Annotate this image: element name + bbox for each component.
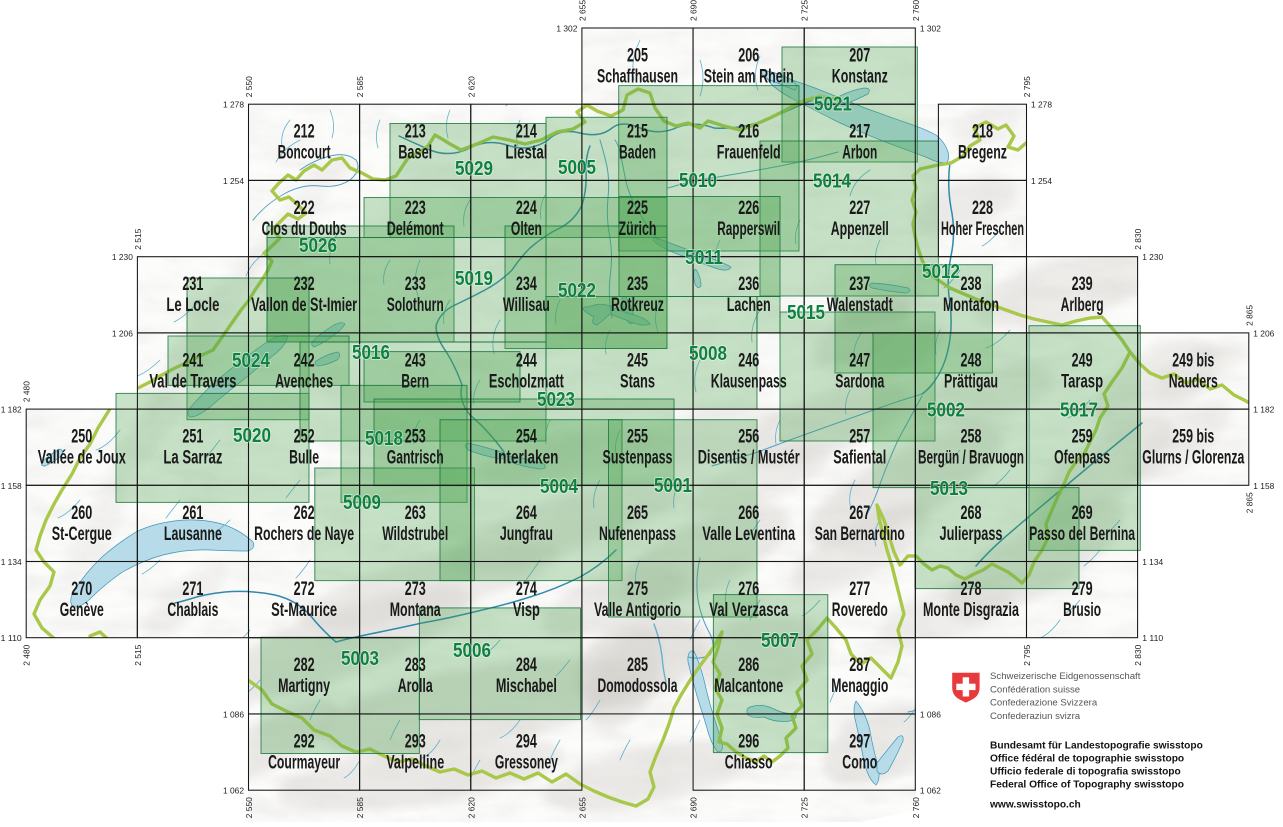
svg-text:226: 226	[738, 198, 759, 219]
svg-text:Klausenpass: Klausenpass	[711, 371, 787, 392]
svg-text:Confédération suisse: Confédération suisse	[990, 684, 1080, 695]
svg-text:5023: 5023	[537, 388, 575, 411]
svg-text:1 062: 1 062	[223, 786, 244, 796]
svg-text:206: 206	[738, 46, 759, 67]
svg-text:Liestal: Liestal	[505, 143, 547, 164]
svg-text:Valle Leventina: Valle Leventina	[702, 524, 795, 545]
svg-text:247: 247	[849, 350, 870, 371]
svg-text:2 655: 2 655	[577, 797, 587, 818]
svg-text:Schweizerische Eidgenossenscha: Schweizerische Eidgenossenschaft	[990, 671, 1141, 682]
svg-text:Wildstrubel: Wildstrubel	[382, 524, 448, 545]
svg-text:246: 246	[738, 350, 759, 371]
svg-text:1 062: 1 062	[920, 786, 941, 796]
svg-text:5018: 5018	[365, 427, 403, 450]
svg-text:253: 253	[405, 427, 426, 448]
svg-text:5009: 5009	[343, 491, 381, 514]
svg-text:1 110: 1 110	[1142, 633, 1163, 643]
svg-text:292: 292	[294, 732, 315, 753]
svg-text:Mischabel: Mischabel	[496, 676, 557, 697]
svg-text:2 655: 2 655	[577, 0, 587, 21]
svg-text:Office fédéral de topographie: Office fédéral de topographie swisstopo	[990, 754, 1184, 765]
svg-text:Visp: Visp	[513, 600, 540, 621]
svg-text:Konstanz: Konstanz	[832, 67, 888, 88]
svg-text:Nauders: Nauders	[1169, 371, 1218, 392]
svg-text:Roveredo: Roveredo	[832, 600, 888, 621]
svg-text:5001: 5001	[654, 474, 692, 497]
svg-text:5012: 5012	[922, 260, 960, 283]
svg-text:Bundesamt für Landestopografie: Bundesamt für Landestopografie swisstopo	[990, 741, 1203, 752]
svg-text:Rotkreuz: Rotkreuz	[611, 295, 664, 316]
svg-text:212: 212	[294, 122, 315, 143]
svg-text:276: 276	[738, 579, 759, 600]
svg-text:274: 274	[516, 579, 537, 600]
svg-text:265: 265	[627, 503, 648, 524]
svg-text:Brusio: Brusio	[1063, 600, 1101, 621]
svg-text:1 206: 1 206	[1253, 328, 1274, 338]
svg-text:Monte Disgrazia: Monte Disgrazia	[923, 600, 1019, 621]
svg-text:Disentis / Mustér: Disentis / Mustér	[698, 448, 800, 469]
svg-text:2 480: 2 480	[22, 644, 32, 665]
svg-text:1 278: 1 278	[223, 100, 244, 110]
svg-text:Stans: Stans	[620, 371, 655, 392]
svg-text:Valpelline: Valpelline	[386, 753, 444, 774]
svg-text:Martigny: Martigny	[278, 676, 330, 697]
svg-text:Sardona: Sardona	[835, 371, 884, 392]
svg-text:Lausanne: Lausanne	[164, 524, 222, 545]
svg-text:5024: 5024	[232, 349, 270, 372]
svg-text:296: 296	[738, 732, 759, 753]
svg-text:273: 273	[405, 579, 426, 600]
svg-text:2 830: 2 830	[1133, 644, 1143, 665]
svg-text:213: 213	[405, 122, 426, 143]
svg-text:285: 285	[627, 655, 648, 676]
svg-text:San Bernardino: San Bernardino	[815, 524, 905, 545]
svg-text:1 254: 1 254	[1031, 176, 1052, 186]
svg-text:Courmayeur: Courmayeur	[268, 753, 340, 774]
svg-text:1 206: 1 206	[112, 328, 133, 338]
svg-text:5008: 5008	[689, 342, 727, 365]
svg-text:249: 249	[1072, 350, 1093, 371]
svg-text:286: 286	[738, 655, 759, 676]
svg-text:297: 297	[849, 732, 870, 753]
svg-text:Boncourt: Boncourt	[278, 143, 331, 164]
svg-text:Valle Antigorio: Valle Antigorio	[594, 600, 681, 621]
svg-text:233: 233	[405, 274, 426, 295]
svg-text:Lachen: Lachen	[727, 295, 771, 316]
svg-text:2 865: 2 865	[1244, 492, 1254, 513]
svg-text:5003: 5003	[341, 647, 379, 670]
svg-text:Tarasp: Tarasp	[1061, 371, 1103, 392]
svg-text:5020: 5020	[233, 424, 271, 447]
svg-text:237: 237	[849, 274, 870, 295]
svg-text:5006: 5006	[453, 639, 491, 662]
svg-text:266: 266	[738, 503, 759, 524]
svg-text:Vallon de St-Imier: Vallon de St-Imier	[251, 295, 357, 316]
svg-text:Bregenz: Bregenz	[958, 143, 1007, 164]
svg-text:Julierpass: Julierpass	[940, 524, 1003, 545]
svg-text:222: 222	[294, 198, 315, 219]
svg-text:5004: 5004	[540, 475, 578, 498]
svg-text:1 302: 1 302	[556, 24, 577, 34]
svg-text:Montana: Montana	[390, 600, 441, 621]
svg-text:2 760: 2 760	[911, 0, 921, 21]
svg-text:Prättigau: Prättigau	[944, 371, 998, 392]
svg-text:251: 251	[182, 427, 203, 448]
svg-text:Rochers de Naye: Rochers de Naye	[254, 524, 354, 545]
svg-text:239: 239	[1072, 274, 1093, 295]
svg-text:Montafon: Montafon	[943, 295, 999, 316]
svg-text:2 795: 2 795	[1022, 644, 1032, 665]
svg-text:5011: 5011	[685, 246, 723, 269]
svg-text:2 795: 2 795	[1022, 76, 1032, 97]
svg-text:2 550: 2 550	[244, 76, 254, 97]
svg-text:2 725: 2 725	[800, 797, 810, 818]
svg-text:227: 227	[849, 198, 870, 219]
svg-text:1 134: 1 134	[1142, 557, 1163, 567]
svg-text:279: 279	[1072, 579, 1093, 600]
svg-text:271: 271	[182, 579, 203, 600]
svg-text:268: 268	[961, 503, 982, 524]
svg-text:236: 236	[738, 274, 759, 295]
svg-text:Stein am Rhein: Stein am Rhein	[704, 67, 794, 88]
svg-text:Zürich: Zürich	[619, 219, 657, 240]
svg-text:259: 259	[1072, 427, 1093, 448]
svg-text:2 690: 2 690	[689, 797, 699, 818]
svg-text:5005: 5005	[558, 156, 596, 179]
svg-text:232: 232	[294, 274, 315, 295]
svg-text:5014: 5014	[813, 170, 851, 193]
svg-text:294: 294	[516, 732, 537, 753]
svg-text:284: 284	[516, 655, 537, 676]
svg-text:Nufenenpass: Nufenenpass	[599, 524, 676, 545]
svg-text:216: 216	[738, 122, 759, 143]
svg-text:Val Verzasca: Val Verzasca	[709, 600, 788, 621]
svg-text:261: 261	[182, 503, 203, 524]
svg-text:269: 269	[1072, 503, 1093, 524]
svg-text:1 182: 1 182	[1253, 405, 1274, 415]
svg-text:Confederaziun svizra: Confederaziun svizra	[990, 711, 1081, 722]
svg-text:Glurns / Glorenza: Glurns / Glorenza	[1142, 448, 1244, 469]
svg-text:245: 245	[627, 350, 648, 371]
svg-text:La Sarraz: La Sarraz	[163, 448, 222, 469]
svg-text:223: 223	[405, 198, 426, 219]
svg-text:Basel: Basel	[398, 143, 432, 164]
svg-text:217: 217	[849, 122, 870, 143]
svg-text:Como: Como	[842, 753, 877, 774]
svg-text:Gressoney: Gressoney	[495, 753, 558, 774]
svg-text:1 182: 1 182	[1, 405, 22, 415]
svg-text:2 585: 2 585	[355, 797, 365, 818]
svg-text:214: 214	[516, 122, 537, 143]
svg-text:1 086: 1 086	[223, 710, 244, 720]
svg-text:293: 293	[405, 732, 426, 753]
svg-text:2 550: 2 550	[244, 797, 254, 818]
svg-text:238: 238	[961, 274, 982, 295]
svg-text:1 086: 1 086	[920, 710, 941, 720]
svg-text:278: 278	[961, 579, 982, 600]
svg-text:5026: 5026	[299, 234, 337, 257]
svg-text:Bergün / Bravuogn: Bergün / Bravuogn	[918, 448, 1024, 469]
svg-text:Arbon: Arbon	[842, 143, 877, 164]
svg-text:Val de Travers: Val de Travers	[149, 371, 236, 392]
svg-text:Hoher Freschen: Hoher Freschen	[941, 219, 1024, 240]
svg-text:www.swisstopo.ch: www.swisstopo.ch	[989, 800, 1081, 811]
svg-text:2 690: 2 690	[689, 0, 699, 21]
svg-text:1 158: 1 158	[1, 481, 22, 491]
svg-text:Domodossola: Domodossola	[598, 676, 678, 697]
svg-text:244: 244	[516, 350, 537, 371]
svg-text:Delémont: Delémont	[387, 219, 444, 240]
svg-text:Genève: Genève	[60, 600, 104, 621]
svg-text:Safiental: Safiental	[833, 448, 886, 469]
svg-text:1 110: 1 110	[1, 633, 22, 643]
svg-text:2 585: 2 585	[355, 76, 365, 97]
svg-text:1 278: 1 278	[1031, 100, 1052, 110]
svg-text:2 515: 2 515	[133, 644, 143, 665]
svg-text:249 bis: 249 bis	[1172, 350, 1214, 371]
svg-text:1 134: 1 134	[1, 557, 22, 567]
svg-text:255: 255	[627, 427, 648, 448]
svg-text:260: 260	[71, 503, 92, 524]
svg-text:Jungfrau: Jungfrau	[500, 524, 553, 545]
svg-text:257: 257	[849, 427, 870, 448]
svg-text:5013: 5013	[930, 477, 968, 500]
svg-text:5022: 5022	[558, 279, 596, 302]
svg-text:Arolla: Arolla	[398, 676, 433, 697]
svg-text:258: 258	[961, 427, 982, 448]
svg-text:2 865: 2 865	[1244, 305, 1254, 326]
svg-text:282: 282	[294, 655, 315, 676]
svg-text:241: 241	[182, 350, 203, 371]
svg-text:2 515: 2 515	[133, 228, 143, 249]
svg-text:215: 215	[627, 122, 648, 143]
svg-text:272: 272	[294, 579, 315, 600]
svg-text:205: 205	[627, 46, 648, 67]
svg-text:207: 207	[849, 46, 870, 67]
svg-text:Sustenpass: Sustenpass	[603, 448, 673, 469]
svg-text:263: 263	[405, 503, 426, 524]
svg-text:259 bis: 259 bis	[1172, 427, 1214, 448]
svg-text:235: 235	[627, 274, 648, 295]
svg-text:St-Maurice: St-Maurice	[271, 600, 337, 621]
svg-text:225: 225	[627, 198, 648, 219]
svg-text:256: 256	[738, 427, 759, 448]
svg-text:Ofenpass: Ofenpass	[1054, 448, 1110, 469]
svg-text:5021: 5021	[814, 93, 852, 116]
svg-text:Ufficio federale di topografia: Ufficio federale di topografia swisstopo	[990, 766, 1181, 777]
svg-text:Avenches: Avenches	[275, 371, 333, 392]
svg-text:218: 218	[972, 122, 993, 143]
svg-text:287: 287	[849, 655, 870, 676]
svg-text:Solothurn: Solothurn	[387, 295, 444, 316]
svg-text:Gantrisch: Gantrisch	[387, 448, 444, 469]
svg-text:262: 262	[294, 503, 315, 524]
svg-text:Menaggio: Menaggio	[831, 676, 888, 697]
svg-text:Rapperswil: Rapperswil	[717, 219, 780, 240]
svg-text:264: 264	[516, 503, 537, 524]
svg-text:2 620: 2 620	[466, 797, 476, 818]
svg-text:Willisau: Willisau	[503, 295, 550, 316]
svg-text:Vallée de Joux: Vallée de Joux	[38, 448, 126, 469]
svg-text:Appenzell: Appenzell	[831, 219, 889, 240]
svg-text:Le Locle: Le Locle	[166, 295, 219, 316]
svg-text:2 760: 2 760	[911, 797, 921, 818]
svg-text:283: 283	[405, 655, 426, 676]
svg-text:Chiasso: Chiasso	[725, 753, 773, 774]
svg-text:2 725: 2 725	[800, 0, 810, 21]
svg-text:2 620: 2 620	[466, 76, 476, 97]
svg-text:Interlaken: Interlaken	[494, 448, 558, 469]
svg-text:250: 250	[71, 427, 92, 448]
svg-text:2 830: 2 830	[1133, 228, 1143, 249]
svg-text:Arlberg: Arlberg	[1061, 295, 1104, 316]
svg-text:231: 231	[182, 274, 203, 295]
svg-text:5029: 5029	[455, 157, 493, 180]
svg-text:248: 248	[961, 350, 982, 371]
svg-text:224: 224	[516, 198, 537, 219]
svg-text:270: 270	[71, 579, 92, 600]
svg-text:252: 252	[294, 427, 315, 448]
svg-text:5002: 5002	[927, 398, 965, 421]
svg-text:1 254: 1 254	[223, 176, 244, 186]
svg-text:5010: 5010	[679, 169, 717, 192]
svg-text:2 480: 2 480	[22, 381, 32, 402]
svg-text:Schaffhausen: Schaffhausen	[597, 67, 678, 88]
svg-text:1 230: 1 230	[112, 252, 133, 262]
svg-text:267: 267	[849, 503, 870, 524]
svg-text:Confederazione Svizzera: Confederazione Svizzera	[990, 698, 1098, 709]
svg-text:5015: 5015	[787, 301, 825, 324]
svg-text:Malcantone: Malcantone	[714, 676, 783, 697]
svg-text:Frauenfeld: Frauenfeld	[717, 143, 781, 164]
svg-text:275: 275	[627, 579, 648, 600]
svg-text:Chablais: Chablais	[167, 600, 218, 621]
svg-text:Baden: Baden	[619, 143, 656, 164]
svg-text:243: 243	[405, 350, 426, 371]
svg-text:5016: 5016	[352, 341, 390, 364]
svg-text:254: 254	[516, 427, 537, 448]
svg-text:1 302: 1 302	[920, 24, 941, 34]
svg-text:277: 277	[849, 579, 870, 600]
svg-text:Walenstadt: Walenstadt	[827, 295, 893, 316]
svg-text:St-Cergue: St-Cergue	[52, 524, 112, 545]
svg-text:Bern: Bern	[401, 371, 429, 392]
svg-text:Olten: Olten	[511, 219, 542, 240]
svg-text:242: 242	[294, 350, 315, 371]
svg-text:1 158: 1 158	[1253, 481, 1274, 491]
svg-text:5017: 5017	[1060, 398, 1098, 421]
svg-text:228: 228	[972, 198, 993, 219]
svg-text:Federal Office of Topography s: Federal Office of Topography swisstopo	[990, 779, 1184, 790]
svg-text:5007: 5007	[761, 629, 799, 652]
svg-text:5019: 5019	[455, 267, 493, 290]
svg-text:1 230: 1 230	[1142, 252, 1163, 262]
svg-text:234: 234	[516, 274, 537, 295]
svg-text:Bulle: Bulle	[289, 448, 319, 469]
svg-text:Passo del Bernina: Passo del Bernina	[1029, 524, 1135, 545]
